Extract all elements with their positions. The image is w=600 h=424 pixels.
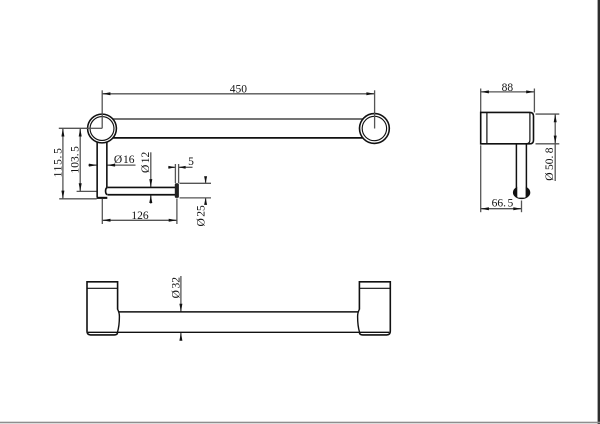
- svg-text:450: 450: [230, 84, 248, 96]
- svg-text:126: 126: [131, 210, 149, 222]
- svg-text:Ø25: Ø25: [196, 205, 208, 227]
- svg-text:5: 5: [188, 156, 194, 168]
- svg-text:103.5: 103.5: [70, 146, 82, 174]
- svg-text:Ø32: Ø32: [171, 277, 183, 299]
- svg-text:115.5: 115.5: [52, 147, 64, 177]
- svg-text:88: 88: [502, 82, 514, 94]
- svg-text:Ø50.8: Ø50.8: [544, 147, 556, 180]
- svg-text:Ø16: Ø16: [114, 154, 135, 166]
- svg-text:66.5: 66.5: [492, 197, 514, 209]
- svg-text:Ø12: Ø12: [140, 151, 152, 173]
